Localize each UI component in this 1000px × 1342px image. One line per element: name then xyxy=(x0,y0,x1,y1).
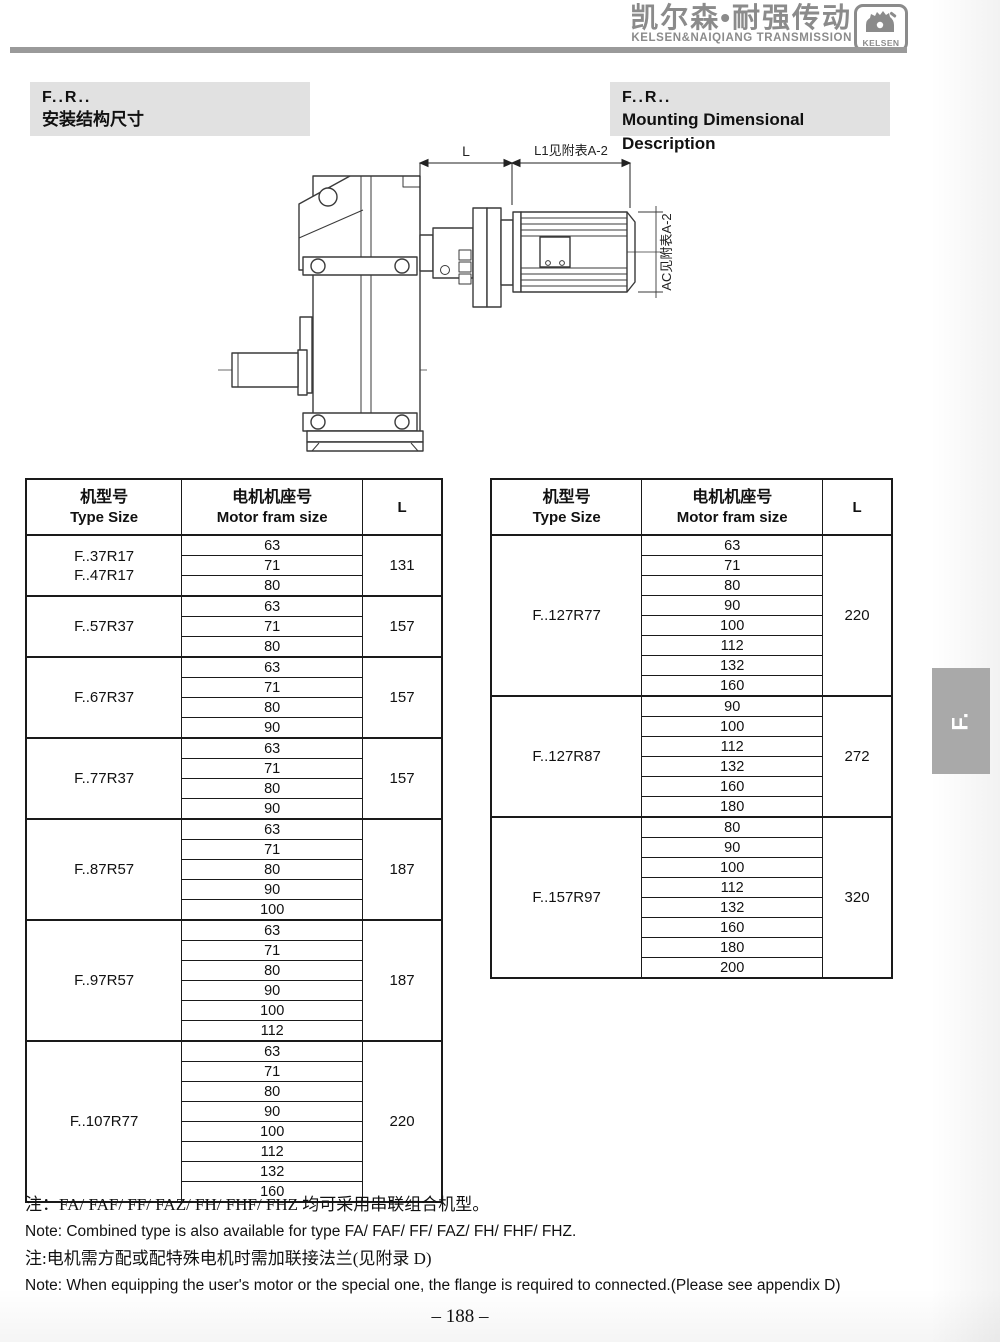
motor-frame-size: 90 xyxy=(182,1102,363,1122)
l-dimension: 157 xyxy=(363,596,442,657)
motor-frame-size: 80 xyxy=(182,698,363,718)
l-dimension: 157 xyxy=(363,657,442,738)
motor-frame-size: 100 xyxy=(642,616,823,636)
motor-frame-size: 160 xyxy=(642,777,823,797)
type-size-cell: F..77R37 xyxy=(26,738,182,819)
motor-frame-size: 90 xyxy=(642,596,823,616)
l-dimension: 187 xyxy=(363,819,442,920)
motor-frame-size: 71 xyxy=(182,941,363,961)
motor-frame-size: 112 xyxy=(182,1142,363,1162)
l-dimension: 320 xyxy=(823,817,892,978)
type-size: F..67R37 xyxy=(27,688,181,707)
motor-frame-size: 112 xyxy=(642,878,823,898)
motor-frame-size: 63 xyxy=(182,920,363,941)
column-header: L xyxy=(363,479,442,535)
column-header: 机型号Type Size xyxy=(26,479,182,535)
type-size: F..87R57 xyxy=(27,860,181,879)
motor-frame-size: 180 xyxy=(642,797,823,818)
motor-frame-size: 80 xyxy=(182,1082,363,1102)
motor-frame-size: 63 xyxy=(182,1041,363,1062)
motor-frame-size: 112 xyxy=(642,737,823,757)
motor-frame-size: 63 xyxy=(182,596,363,617)
spec-table-right: 机型号Type Size电机机座号Motor fram sizeLF..127R… xyxy=(490,478,893,979)
type-size-cell: F..87R57 xyxy=(26,819,182,920)
footnotes: 注：FA/ FAF/ FF/ FAZ/ FH/ FHF/ FHZ 均可采用串联组… xyxy=(25,1194,945,1302)
type-size-cell: F..57R37 xyxy=(26,596,182,657)
motor-frame-size: 71 xyxy=(182,617,363,637)
motor-frame-size: 100 xyxy=(182,1001,363,1021)
brand-name-cn: 凯尔森•耐强传动 xyxy=(630,4,852,32)
motor-frame-size: 100 xyxy=(182,900,363,921)
dim-label-l: L xyxy=(462,143,470,159)
l-dimension: 187 xyxy=(363,920,442,1041)
spec-table: 机型号Type Size电机机座号Motor fram sizeLF..127R… xyxy=(490,478,893,979)
type-size: F..127R77 xyxy=(492,606,641,625)
motor-frame-size: 71 xyxy=(642,556,823,576)
motor-frame-size: 132 xyxy=(642,898,823,918)
spec-table: 机型号Type Size电机机座号Motor fram sizeLF..37R1… xyxy=(25,478,443,1203)
column-header: 电机机座号Motor fram size xyxy=(182,479,363,535)
motor-frame-size: 90 xyxy=(182,880,363,900)
section-tab-f: F. xyxy=(932,668,990,774)
motor-frame-size: 63 xyxy=(182,657,363,678)
motor-frame-size: 160 xyxy=(642,676,823,697)
model-code: F..R.. xyxy=(42,88,310,108)
spec-table-left: 机型号Type Size电机机座号Motor fram sizeLF..37R1… xyxy=(25,478,443,1203)
motor-frame-size: 80 xyxy=(182,779,363,799)
motor-frame-size: 90 xyxy=(182,799,363,820)
motor-frame-size: 160 xyxy=(642,918,823,938)
motor-frame-size: 132 xyxy=(642,656,823,676)
motor-frame-size: 112 xyxy=(182,1021,363,1042)
title-block-cn: F..R.. 安装结构尺寸 xyxy=(30,82,310,136)
model-code: F..R.. xyxy=(622,88,890,108)
motor-frame-size: 63 xyxy=(182,819,363,840)
motor-frame-size: 80 xyxy=(182,961,363,981)
type-size: F..57R37 xyxy=(27,617,181,636)
header-divider xyxy=(10,47,907,53)
motor-frame-size: 100 xyxy=(182,1122,363,1142)
type-size: F..157R97 xyxy=(492,888,641,907)
motor-frame-size: 132 xyxy=(182,1162,363,1182)
motor-frame-size: 80 xyxy=(182,860,363,880)
motor-frame-size: 100 xyxy=(642,858,823,878)
motor-frame-size: 71 xyxy=(182,840,363,860)
motor-frame-size: 90 xyxy=(182,981,363,1001)
page-number: – 188 – xyxy=(0,1306,920,1328)
kelsen-logo: KELSEN xyxy=(854,4,908,52)
motor-frame-size: 63 xyxy=(642,535,823,556)
motor-frame-size: 63 xyxy=(182,738,363,759)
gear-icon xyxy=(863,11,899,38)
l-dimension: 220 xyxy=(363,1041,442,1202)
motor-frame-size: 80 xyxy=(182,637,363,658)
brand-name-en: KELSEN&NAIQIANG TRANSMISSION xyxy=(630,32,852,45)
motor-frame-size: 80 xyxy=(642,817,823,838)
type-size-cell: F..127R87 xyxy=(491,696,642,817)
column-header: L xyxy=(823,479,892,535)
l-dimension: 131 xyxy=(363,535,442,596)
motor-frame-size: 90 xyxy=(642,696,823,717)
dim-label-l1: L1见附表A-2 xyxy=(534,143,608,158)
l-dimension: 220 xyxy=(823,535,892,696)
note-line-en-1: Note: Combined type is also available fo… xyxy=(25,1221,945,1242)
motor-frame-size: 80 xyxy=(642,576,823,596)
type-size: F..127R87 xyxy=(492,747,641,766)
motor-frame-size: 112 xyxy=(642,636,823,656)
type-size: F..107R77 xyxy=(27,1112,181,1131)
motor-frame-size: 200 xyxy=(642,958,823,979)
type-size: F..37R17 xyxy=(27,547,181,566)
type-size: F..47R17 xyxy=(27,566,181,585)
type-size-cell: F..97R57 xyxy=(26,920,182,1041)
note-line-cn-2: 注:电机需方配或配特殊电机时需加联接法兰(见附录 D) xyxy=(25,1248,945,1269)
motor-frame-size: 90 xyxy=(182,718,363,739)
type-size-cell: F..127R77 xyxy=(491,535,642,696)
note-line-cn-1: 注：FA/ FAF/ FF/ FAZ/ FH/ FHF/ FHZ 均可采用串联组… xyxy=(25,1194,945,1215)
l-dimension: 272 xyxy=(823,696,892,817)
motor-frame-size: 63 xyxy=(182,535,363,556)
type-size-cell: F..67R37 xyxy=(26,657,182,738)
l-dimension: 157 xyxy=(363,738,442,819)
gearmotor-technical-drawing: L L1见附表A-2 AC见附表A-2 xyxy=(215,140,685,460)
motor-frame-size: 100 xyxy=(642,717,823,737)
type-size-cell: F..157R97 xyxy=(491,817,642,978)
motor-frame-size: 71 xyxy=(182,678,363,698)
type-size: F..97R57 xyxy=(27,971,181,990)
type-size-cell: F..37R17F..47R17 xyxy=(26,535,182,596)
note-line-en-2: Note: When equipping the user's motor or… xyxy=(25,1275,945,1296)
motor-frame-size: 71 xyxy=(182,556,363,576)
type-size-cell: F..107R77 xyxy=(26,1041,182,1202)
title-block-en: F..R.. Mounting Dimensional Description xyxy=(610,82,890,136)
type-size: F..77R37 xyxy=(27,769,181,788)
motor-frame-size: 132 xyxy=(642,757,823,777)
section-tab-label: F. xyxy=(948,711,974,730)
title-subtitle-cn: 安装结构尺寸 xyxy=(42,108,310,132)
motor-frame-size: 71 xyxy=(182,759,363,779)
motor-frame-size: 90 xyxy=(642,838,823,858)
motor-frame-size: 71 xyxy=(182,1062,363,1082)
column-header: 电机机座号Motor fram size xyxy=(642,479,823,535)
brand-header: 凯尔森•耐强传动 KELSEN&NAIQIANG TRANSMISSION xyxy=(630,4,852,45)
column-header: 机型号Type Size xyxy=(491,479,642,535)
dim-label-ac: AC见附表A-2 xyxy=(659,213,674,290)
motor-frame-size: 80 xyxy=(182,576,363,597)
motor-frame-size: 180 xyxy=(642,938,823,958)
